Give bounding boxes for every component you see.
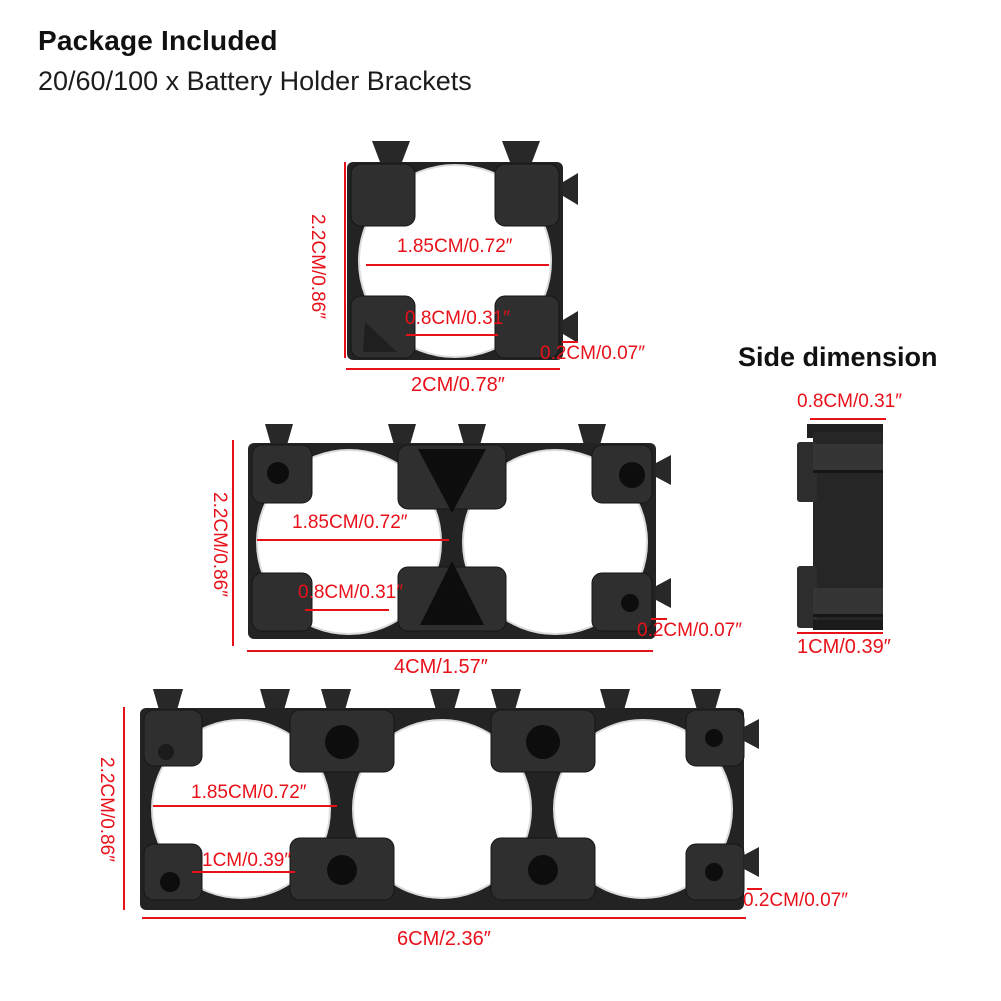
dim-line-hole-triple [153,805,337,807]
pad-hole [526,725,560,759]
pad-hole [325,725,359,759]
side-tab [656,578,671,608]
dim-rib-single: 0.2CM/0.07″ [540,344,645,365]
dim-line-pad-double [305,609,389,611]
dim-height-double: 2.2CM/0.86″ [208,492,229,597]
side-view-photo [797,424,887,635]
package-contents: 20/60/100 x Battery Holder Brackets [38,66,472,97]
side-tab [744,847,759,877]
dim-line-height-double [232,440,234,646]
dim-pad-single: 0.8CM/0.31″ [405,309,510,330]
dim-height-triple: 2.2CM/0.86″ [95,757,116,862]
side-section-title: Side dimension [738,342,938,373]
dim-line-hole-double [257,539,449,541]
pad-hole [528,855,558,885]
page-title: Package Included [38,25,278,57]
corner-pad [144,710,202,766]
dim-side-top: 0.8CM/0.31″ [797,392,902,413]
double-bracket-photo [246,421,676,655]
dim-line-width-triple [142,917,746,919]
dim-pad-double: 0.8CM/0.31″ [298,583,403,604]
corner-pad [495,164,559,226]
side-piece-shape [797,424,883,630]
dim-line-hole-single [366,264,549,266]
dim-height-single: 2.2CM/0.86″ [306,214,327,319]
dim-rib-double: 0.2CM/0.07″ [637,621,742,642]
dim-line-side-top [810,418,886,420]
dim-hole-triple: 1.85CM/0.72″ [191,783,307,804]
dim-line-pad-single [406,334,498,336]
product-image-canvas: Package Included 20/60/100 x Battery Hol… [0,0,1001,1001]
dim-line-width-single [346,368,560,370]
dim-width-single: 2CM/0.78″ [411,374,505,396]
dim-line-pad-triple [192,871,295,873]
side-tab [563,311,578,343]
pad-hole [327,855,357,885]
dim-rib-triple: 0.2CM/0.07″ [743,891,848,912]
side-tab [656,455,671,485]
side-tab [563,173,578,205]
dim-line-height-single [344,162,346,358]
dim-width-triple: 6CM/2.36″ [397,928,491,950]
dim-side-bottom: 1CM/0.39″ [797,636,891,658]
dim-line-height-triple [123,707,125,910]
dim-line-side-bottom [797,632,883,634]
dim-hole-single: 1.85CM/0.72″ [397,237,513,258]
dim-pad-triple: 1CM/0.39″ [202,851,291,872]
corner-pad [351,164,415,226]
dim-width-double: 4CM/1.57″ [394,656,488,678]
side-tab [744,719,759,749]
dim-line-width-double [247,650,653,652]
dim-hole-double: 1.85CM/0.72″ [292,513,408,534]
